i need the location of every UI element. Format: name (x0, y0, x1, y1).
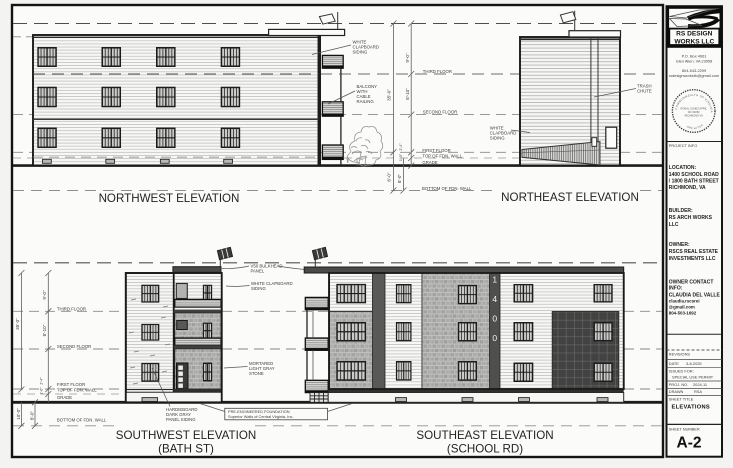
svg-text:8'-10": 8'-10" (405, 88, 410, 100)
svg-text:TOP OF FDN. WALL: TOP OF FDN. WALL (422, 154, 462, 159)
svg-text:NO 34052: NO 34052 (688, 110, 700, 114)
svg-text:RSCS REAL ESTATE: RSCS REAL ESTATE (669, 249, 719, 255)
svg-text:RICHMOND, VA: RICHMOND, VA (669, 185, 706, 191)
svg-text:1'-0": 1'-0" (399, 153, 403, 161)
svg-text:CHUTE: CHUTE (637, 89, 652, 94)
svg-text:@gmail.com: @gmail.com (669, 305, 695, 310)
svg-text:8'-0": 8'-0" (30, 411, 35, 421)
svg-text:LLC: LLC (669, 222, 679, 228)
svg-text:RONAL SCHEZ APRIL: RONAL SCHEZ APRIL (680, 107, 707, 111)
svg-text:THIRD FLOOR: THIRD FLOOR (423, 69, 452, 74)
svg-text:ELEVATIONS: ELEVATIONS (672, 405, 711, 411)
svg-text:INFO:: INFO: (669, 286, 683, 292)
svg-text:BOTTOM OF FDN. WALL: BOTTOM OF FDN. WALL (422, 186, 472, 191)
svg-text:rsdesignworksllc@gmail.com: rsdesignworksllc@gmail.com (669, 73, 719, 78)
svg-text:GRADE: GRADE (422, 160, 437, 165)
svg-text:REVISIONS: REVISIONS (669, 352, 691, 357)
svg-text:RSA: RSA (694, 389, 702, 394)
svg-text:PANEL SIDING: PANEL SIDING (166, 417, 196, 422)
svg-text:FIRST FLOOR: FIRST FLOOR (422, 148, 450, 153)
svg-text:PROJECT INFO: PROJECT INFO (669, 143, 697, 148)
svg-text:SIDING: SIDING (490, 136, 505, 141)
svg-text:claudia.rscsrei: claudia.rscsrei (669, 299, 700, 304)
svg-text:/ 1800 BATH STREET: / 1800 BATH STREET (669, 179, 719, 185)
svg-text:FIRST FLOOR: FIRST FLOOR (57, 382, 85, 387)
svg-text:0: 0 (492, 333, 497, 343)
svg-text:3-8-2025: 3-8-2025 (686, 361, 702, 366)
svg-text:0: 0 (492, 314, 497, 324)
svg-text:THIRD FLOOR: THIRD FLOOR (57, 307, 86, 312)
svg-text:BUILDER:: BUILDER: (669, 208, 693, 214)
svg-text:SOUTHEAST ELEVATION: SOUTHEAST ELEVATION (416, 429, 553, 442)
svg-text:SIDING: SIDING (353, 50, 368, 55)
svg-text:BOTTOM OF FDN. WALL: BOTTOM OF FDN. WALL (57, 418, 107, 423)
svg-text:RAILING: RAILING (357, 99, 375, 104)
svg-text:2024-11: 2024-11 (693, 382, 707, 387)
svg-text:ISSUED FOR:: ISSUED FOR: (669, 369, 694, 374)
svg-text:(SCHOOL RD): (SCHOOL RD) (447, 443, 523, 456)
svg-text:GRADE: GRADE (57, 395, 72, 400)
svg-text:6'-0": 6'-0" (387, 172, 392, 182)
svg-text:SECOND FLOOR: SECOND FLOOR (423, 110, 457, 115)
svg-text:OWNER:: OWNER: (669, 242, 690, 248)
svg-text:9'-0": 9'-0" (42, 290, 47, 300)
svg-text:SOUTHWEST ELEVATION: SOUTHWEST ELEVATION (116, 429, 256, 442)
svg-text:8'-10": 8'-10" (42, 324, 47, 336)
svg-text:SIDING: SIDING (251, 286, 266, 291)
svg-text:804-503-1692: 804-503-1692 (669, 311, 697, 316)
svg-text:RICHMOND VA: RICHMOND VA (685, 114, 704, 118)
svg-text:STONE: STONE (249, 371, 264, 376)
svg-text:INVESTMENTS LLC: INVESTMENTS LLC (669, 256, 716, 262)
svg-text:(BATH ST): (BATH ST) (158, 443, 214, 456)
svg-text:SPECIAL USE PERMIT: SPECIAL USE PERMIT (672, 374, 714, 379)
svg-text:PANEL: PANEL (251, 269, 265, 274)
svg-text:1400 SCHOOL ROAD: 1400 SCHOOL ROAD (669, 172, 719, 178)
svg-text:2'-4": 2'-4" (399, 143, 403, 151)
svg-text:RS ARCH WORKS: RS ARCH WORKS (669, 215, 713, 221)
svg-text:A-2: A-2 (677, 435, 702, 452)
svg-text:2'-4": 2'-4" (40, 377, 44, 385)
svg-text:35'-0": 35'-0" (387, 89, 392, 101)
svg-text:4: 4 (492, 294, 497, 304)
svg-text:PROJ. NO.: PROJ. NO. (669, 382, 688, 387)
svg-text:DATE: DATE (669, 361, 679, 366)
svg-text:8'-0": 8'-0" (397, 174, 402, 184)
svg-text:SECOND FLOOR: SECOND FLOOR (57, 344, 91, 349)
svg-text:LOCATION:: LOCATION: (669, 165, 697, 171)
svg-text:Glen Allen, VA 23058: Glen Allen, VA 23058 (676, 59, 712, 64)
svg-text:WORKS LLC: WORKS LLC (674, 38, 714, 45)
svg-text:TOP OF FDN. WALL: TOP OF FDN. WALL (57, 388, 97, 393)
svg-text:1: 1 (492, 275, 497, 285)
svg-text:DRAWN: DRAWN (669, 389, 684, 394)
svg-text:SHEET NUMBER: SHEET NUMBER (669, 427, 700, 432)
svg-text:9'-0": 9'-0" (405, 53, 410, 63)
svg-text:35'-0": 35'-0" (15, 318, 20, 330)
svg-text:10'-0": 10'-0" (16, 408, 21, 420)
svg-text:NORTHEAST ELEVATION: NORTHEAST ELEVATION (501, 191, 639, 204)
svg-text:NORTHWEST ELEVATION: NORTHWEST ELEVATION (99, 192, 240, 205)
svg-text:RS DESIGN: RS DESIGN (676, 31, 713, 38)
svg-text:Superior Walls of Central Virg: Superior Walls of Central Virginia, Inc. (228, 414, 294, 419)
svg-text:1'-0": 1'-0" (40, 387, 44, 395)
svg-text:SHEET TITLE: SHEET TITLE (669, 396, 694, 401)
